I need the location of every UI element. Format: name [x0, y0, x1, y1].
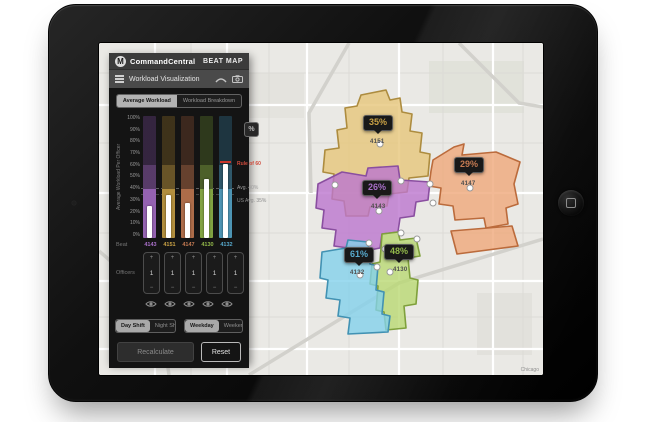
badge-pct: 29%	[460, 159, 478, 169]
reset-button[interactable]: Reset	[201, 342, 241, 362]
weekday-option[interactable]: Weekday	[185, 320, 219, 332]
beat-badge-4132[interactable]: 61%	[344, 247, 374, 263]
officers-row-label: Officers	[115, 270, 144, 276]
officers-count: 1	[213, 270, 217, 277]
officers-stepper-4151: + 1 −	[164, 252, 181, 294]
bar-fill	[147, 206, 152, 238]
increment-button[interactable]: +	[192, 255, 196, 261]
officers-stepper-4132: + 1 −	[227, 252, 244, 294]
workload-chart: Average Workload Per Officer 100%90% 80%…	[115, 116, 243, 238]
tablet-device: 35% 4151 29% 4147 26% 4143 48% 4130 61% …	[48, 4, 598, 402]
beat-id-on-map: 4143	[371, 204, 386, 210]
badge-pct: 35%	[369, 117, 387, 127]
beat-badge-4151[interactable]: 35%	[363, 115, 393, 131]
beat-id-on-map: 4147	[461, 181, 476, 187]
tab-average-workload[interactable]: Average Workload	[117, 95, 177, 107]
officers-stepper-4130: + 1 −	[206, 252, 223, 294]
percent-toggle-button[interactable]: %	[244, 122, 259, 137]
beat-id-on-map: 4130	[393, 267, 408, 273]
decrement-button[interactable]: −	[213, 285, 217, 291]
front-camera-icon	[72, 201, 76, 205]
decrement-button[interactable]: −	[192, 285, 196, 291]
workload-panel: M CommandCentral BEAT MAP Workload Visua…	[109, 53, 249, 363]
day-segmented-control: Weekday Weekend	[184, 319, 243, 333]
weekend-option[interactable]: Weekend	[219, 320, 243, 332]
camera-icon[interactable]	[232, 75, 243, 83]
bar-chart-plot: Rule of 60 Avg. 40% US Avg. 35% %	[143, 116, 232, 238]
visibility-row	[115, 298, 243, 310]
decrement-button[interactable]: −	[171, 285, 175, 291]
beat-id-on-map: 4151	[370, 139, 385, 145]
view-tabs: Average Workload Workload Breakdown	[115, 94, 243, 108]
increment-button[interactable]: +	[213, 255, 217, 261]
shift-segmented-control: Day Shift Night Shift	[115, 319, 176, 333]
tab-workload-breakdown[interactable]: Workload Breakdown	[177, 95, 241, 107]
increment-button[interactable]: +	[234, 255, 238, 261]
badge-pct: 26%	[368, 182, 386, 192]
beat-badge-4130[interactable]: 48%	[384, 244, 414, 260]
officers-stepper-4143: + 1 −	[143, 252, 160, 294]
bar-beat-4147[interactable]	[181, 116, 194, 238]
home-button[interactable]	[558, 190, 584, 216]
motorola-logo-icon: M	[115, 56, 126, 67]
increment-button[interactable]: +	[171, 255, 175, 261]
beat-badge-4147[interactable]: 29%	[454, 157, 484, 173]
night-shift-option[interactable]: Night Shift	[150, 320, 176, 332]
panel-body: Average Workload Workload Breakdown Aver…	[109, 88, 249, 368]
rule-of-60-marker	[220, 161, 231, 163]
screen: 35% 4151 29% 4147 26% 4143 48% 4130 61% …	[99, 43, 543, 375]
visibility-eye-icon[interactable]	[143, 298, 158, 310]
y-axis-label: Average Workload Per Officer	[115, 116, 123, 238]
app-header: M CommandCentral BEAT MAP	[109, 53, 249, 69]
officers-count: 1	[150, 270, 154, 277]
visibility-eye-icon[interactable]	[181, 298, 196, 310]
officers-row: Officers + 1 − + 1 −	[115, 252, 243, 294]
actions-row: Recalculate Reset	[115, 342, 243, 362]
rule-of-60-label: Rule of 60	[237, 161, 261, 167]
beat-id-on-map: 4132	[350, 270, 365, 276]
bar-beat-4130[interactable]	[200, 116, 213, 238]
beat-id-4130[interactable]: 4130	[201, 242, 214, 248]
officers-stepper-4147: + 1 −	[185, 252, 202, 294]
beat-id-4151[interactable]: 4151	[163, 242, 176, 248]
avg-label: Avg. 40%	[237, 185, 258, 191]
badge-pct: 61%	[350, 249, 368, 259]
decrement-button[interactable]: −	[150, 285, 154, 291]
bar-beat-4151[interactable]	[162, 116, 175, 238]
visibility-eye-icon[interactable]	[200, 298, 215, 310]
beat-id-4147[interactable]: 4147	[182, 242, 195, 248]
visibility-eye-icon[interactable]	[162, 298, 177, 310]
officers-count: 1	[171, 270, 175, 277]
badge-pct: 48%	[390, 246, 408, 256]
bar-fill	[166, 195, 171, 238]
panel-header: Workload Visualization	[109, 69, 249, 88]
bar-fill	[185, 203, 190, 238]
bar-fill	[223, 164, 228, 238]
hamburger-menu-icon[interactable]	[115, 75, 124, 83]
panel-title: Workload Visualization	[129, 76, 210, 83]
filters-row: Day Shift Night Shift Weekday Weekend	[115, 319, 243, 333]
recalculate-button[interactable]: Recalculate	[117, 342, 194, 362]
collapse-arc-icon[interactable]	[215, 76, 227, 83]
officers-count: 1	[234, 270, 238, 277]
app-product-title: BEAT MAP	[203, 58, 243, 65]
beat-id-4132[interactable]: 4132	[220, 242, 233, 248]
y-axis-ticks: 100%90% 80%70% 60%50% 40%30% 20%10% 0%	[123, 116, 143, 238]
bar-fill	[204, 179, 209, 238]
beat-badge-4143[interactable]: 26%	[362, 180, 392, 196]
stage: 35% 4151 29% 4147 26% 4143 48% 4130 61% …	[0, 0, 645, 422]
decrement-button[interactable]: −	[234, 285, 238, 291]
beat-id-4143[interactable]: 4143	[144, 242, 157, 248]
beat-row-label: Beat	[115, 242, 144, 248]
bar-beat-4132[interactable]	[219, 116, 232, 238]
increment-button[interactable]: +	[150, 255, 154, 261]
app-brand: CommandCentral	[130, 57, 199, 66]
bar-beat-4143[interactable]	[143, 116, 156, 238]
us-avg-label: US Avg. 35%	[237, 198, 266, 204]
officers-count: 1	[192, 270, 196, 277]
map-attribution: Chicago	[521, 367, 539, 373]
y-axis: Average Workload Per Officer 100%90% 80%…	[115, 116, 143, 238]
beat-row: Beat 4143 4151 4147 4130 4132	[115, 242, 243, 248]
visibility-eye-icon[interactable]	[219, 298, 234, 310]
day-shift-option[interactable]: Day Shift	[116, 320, 150, 332]
